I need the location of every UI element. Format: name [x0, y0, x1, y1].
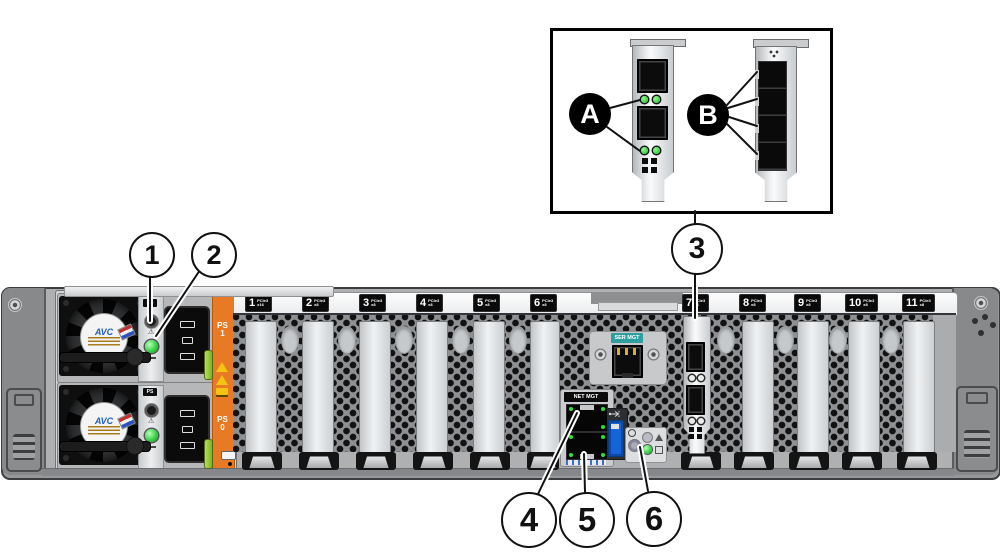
slot-latch[interactable] [527, 452, 559, 470]
slot-latch[interactable] [356, 452, 396, 470]
slot9-filler-panel [797, 321, 829, 453]
slot-latch[interactable] [681, 452, 721, 470]
port-led [641, 96, 648, 103]
vent-thumb-grip [281, 326, 299, 354]
rj45-tab [755, 124, 759, 133]
ethernet-ports-icon [769, 50, 779, 58]
slot-latch[interactable] [734, 452, 774, 470]
diagram-canvas: AVC PS ⚠ AVC PS ⚠ PS1 PS0 [0, 0, 1000, 554]
bracket-vent-hole [697, 427, 702, 432]
pcie-slot-label-10: 10 PCIe3x8 [845, 294, 878, 312]
slot-latch[interactable] [842, 452, 882, 470]
psu0-handle-knob[interactable] [126, 437, 144, 455]
slot-latch[interactable] [413, 452, 453, 470]
slot7-sfp-port-1[interactable] [686, 385, 705, 415]
pcie-slot-label-3: 3 PCIe3x8 [359, 294, 386, 312]
rj45-clip [622, 373, 633, 378]
vent-thumb-grip [509, 326, 527, 354]
fan-brand: AVC [95, 328, 113, 337]
vent-thumb-grip [882, 326, 900, 354]
psu0-cord-clip[interactable] [204, 439, 213, 469]
locator-button[interactable] [629, 440, 640, 451]
pcie-slot-label-4: 4 PCIe3x8 [416, 294, 443, 312]
psu0-led-column [138, 385, 164, 471]
bracket-vent-hole [651, 167, 657, 173]
slot5-filler-panel [473, 321, 505, 453]
callout-3: 3 [671, 223, 723, 275]
slot7-sfp-port-0[interactable] [686, 342, 705, 372]
card-a-sfp-port-0[interactable] [637, 59, 668, 93]
usb-icon [608, 410, 622, 418]
coax-panel [933, 315, 956, 452]
net-mgt-port-0[interactable] [566, 404, 608, 432]
left-ear-latch[interactable] [6, 388, 42, 472]
bracket-vent-hole [697, 434, 702, 439]
pcie-slot-label-6: 6 PCIe3x8 [530, 294, 557, 312]
slot10-filler-panel [848, 321, 880, 453]
psu1-ps-chip: PS [143, 299, 157, 307]
ok-led [643, 445, 652, 454]
callout-1: 1 [129, 232, 175, 278]
port-led [653, 96, 660, 103]
port-led [698, 375, 704, 381]
port-led [641, 147, 648, 154]
net-mgt-port-1[interactable] [566, 432, 608, 460]
rj45-tab [755, 97, 759, 106]
rj45-tab [580, 454, 594, 459]
fault-led [643, 433, 652, 442]
bracket-vent-hole [642, 167, 648, 173]
callout-4: 4 [501, 492, 557, 548]
card-b-rj45-column[interactable] [758, 61, 787, 171]
link-leds [569, 407, 573, 411]
slot8-filler-panel [742, 321, 774, 453]
vent-holes [968, 312, 996, 338]
psu1-test-button[interactable] [145, 315, 158, 328]
psu1-fault-icon: ⚠ [148, 329, 154, 336]
slot6-filler-panel [530, 321, 560, 453]
port-led [689, 418, 695, 424]
rj45-tab [580, 405, 594, 410]
pcie-slot-label-8: 8 PCIe3x8 [739, 294, 766, 312]
slot3-filler-panel [359, 321, 391, 453]
fan-brand: AVC [95, 417, 113, 426]
right-ear-latch[interactable] [956, 386, 998, 472]
ser-mgt-rj45-port[interactable] [612, 345, 643, 378]
slot1-filler-panel [245, 321, 277, 453]
vent-thumb-grip [829, 326, 847, 354]
psu0-ps-chip: PS [143, 388, 157, 396]
psu1-led-column [138, 296, 164, 382]
screw-icon [8, 298, 22, 312]
callout-5: 5 [559, 492, 615, 548]
screw-icon [228, 462, 232, 466]
psu1-cord-clip[interactable] [204, 350, 213, 380]
pcie-slot-label-9: 9 PCIe3x8 [794, 294, 821, 312]
vent-thumb-grip [338, 326, 356, 354]
locator-icon [628, 429, 636, 437]
chassis-top-lip [64, 286, 334, 297]
disconnect-cords-icon [216, 388, 228, 397]
port-led [653, 147, 660, 154]
screw-icon [593, 347, 608, 362]
callout-2: 2 [191, 232, 237, 278]
screw-icon [646, 347, 661, 362]
fan-spec-lines [88, 337, 120, 346]
slot-latch[interactable] [242, 452, 282, 470]
screw-icon [974, 296, 988, 310]
port-led [689, 375, 695, 381]
pcie-slot-label-7: 7 PCIe3x8 [682, 294, 709, 312]
vent-thumb-grip [452, 326, 470, 354]
card-a-sfp-port-1[interactable] [637, 106, 668, 140]
slot-latch[interactable] [789, 452, 829, 470]
pcie-slot-label-11: 11 PCIe3x8 [902, 294, 935, 312]
slot-latch[interactable] [470, 452, 510, 470]
callout-b: B [687, 94, 729, 136]
psu0-fault-icon: ⚠ [148, 418, 154, 425]
rj45-tab [755, 151, 759, 160]
ps1-label: PS1 [212, 322, 233, 338]
ser-mgt-label: SER MGT [611, 333, 643, 343]
bracket-vent-hole [642, 158, 648, 164]
link-leds [569, 435, 573, 439]
slot11-filler-panel [903, 321, 935, 453]
port-led [698, 418, 704, 424]
callout-a: A [569, 93, 611, 135]
psu1-handle-knob[interactable] [126, 348, 144, 366]
rj45-tab [755, 70, 759, 79]
usb-port[interactable] [608, 420, 624, 457]
bracket-vent-hole [689, 427, 694, 432]
service-label [221, 451, 236, 460]
slot-latch[interactable] [299, 452, 339, 470]
usb-port-tab [611, 424, 619, 429]
pcie-slot-label-5: 5 PCIe3x8 [473, 294, 500, 312]
port-activity-legend [566, 460, 606, 465]
vent-thumb-grip [717, 326, 735, 354]
net-mgt-label: NET MGT [564, 392, 608, 402]
vent-thumb-grip [776, 326, 794, 354]
fan-spec-lines [88, 426, 120, 435]
psu0-test-button[interactable] [145, 404, 158, 417]
slot-zone-top-bar [598, 302, 678, 311]
bracket-vent-hole [689, 434, 694, 439]
slot2-filler-panel [302, 321, 334, 453]
callout-6: 6 [626, 491, 682, 547]
ps0-label: PS0 [212, 416, 233, 432]
vent-thumb-grip [395, 326, 413, 354]
rj45-pins [617, 348, 637, 355]
bracket-vent-hole [651, 158, 657, 164]
slot4-filler-panel [416, 321, 448, 453]
ok-icon [655, 446, 663, 454]
slot-latch[interactable] [897, 452, 937, 470]
